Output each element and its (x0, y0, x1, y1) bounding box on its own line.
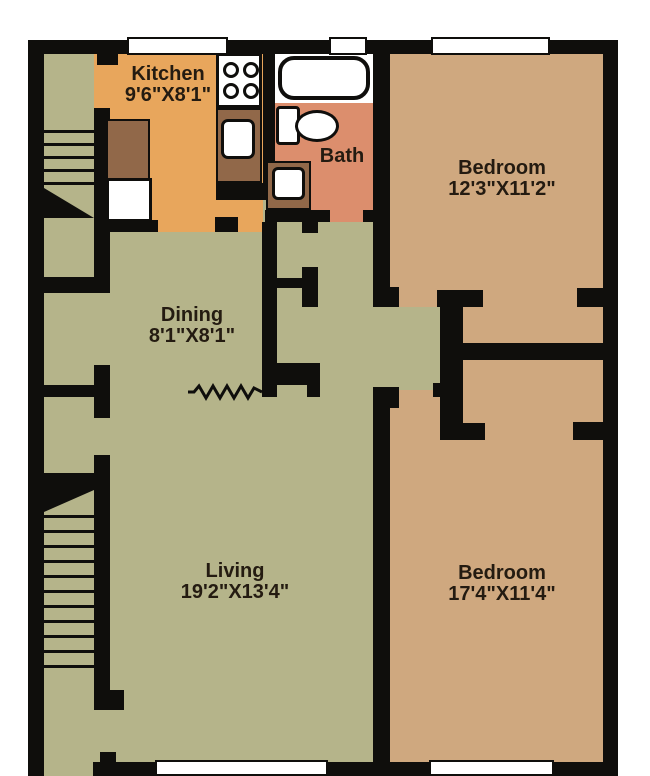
label-bedroom1: Bedroom 12'3"X11'2" (422, 158, 582, 200)
room-dims: 12'3"X11'2" (422, 179, 582, 200)
label-dining: Dining 8'1"X8'1" (112, 305, 272, 347)
kitchen-counter-left (106, 119, 150, 181)
room-name: Living (155, 561, 315, 582)
room-dims: 9'6"X8'1" (88, 85, 248, 106)
front-door-opening-floor (44, 763, 93, 776)
wall-bath-bottom (265, 210, 330, 222)
bedroom1-closet-floor (457, 307, 604, 343)
wall-bath-door-tooth (302, 222, 318, 233)
stair-tread (44, 156, 94, 159)
stair-tread (44, 575, 94, 578)
wall-closet2-stub-right (573, 422, 604, 440)
stair-tread (44, 130, 94, 133)
stair-tread (44, 560, 94, 563)
wall-hall-low-tooth (307, 385, 320, 397)
wall-bedroom1-foot (390, 287, 399, 307)
wall-closet-t-bar (440, 307, 463, 440)
stair-tread (44, 605, 94, 608)
stair-tread (44, 635, 94, 638)
wall-shaft-seg-d (94, 490, 110, 710)
refrigerator-icon (106, 178, 152, 222)
stair-tread (44, 530, 94, 533)
stair-tread (44, 590, 94, 593)
stair-tread (44, 620, 94, 623)
wall-shaft-foot (108, 690, 124, 710)
bath-sink-icon (272, 167, 305, 200)
wall-bedroom1-left (373, 53, 390, 307)
kitchen-sink-icon (221, 119, 255, 159)
label-bedroom2: Bedroom 17'4"X11'4" (422, 563, 582, 605)
room-name: Bath (302, 146, 382, 167)
room-name: Bedroom (422, 158, 582, 179)
floor-plan: Kitchen 9'6"X8'1" Bath Bedroom 12'3"X11'… (0, 0, 650, 776)
label-kitchen: Kitchen 9'6"X8'1" (88, 64, 248, 106)
wall-bedroom-separator (457, 343, 618, 360)
wall-hall-mid-tooth (302, 267, 318, 307)
wall-bedroom2-door-tooth (433, 383, 445, 397)
bathtub-icon (278, 56, 370, 100)
stair-tread (44, 169, 94, 172)
outer-wall-left (28, 40, 44, 776)
window-living (155, 760, 328, 776)
room-name: Bedroom (422, 563, 582, 584)
window-bedroom2 (429, 760, 554, 776)
wall-bedroom2-foot (390, 387, 399, 408)
room-dims: 8'1"X8'1" (112, 326, 272, 347)
wall-closet1-stub-right (577, 288, 604, 307)
window-bedroom1 (431, 37, 550, 55)
room-dims: 19'2"X13'4" (155, 582, 315, 603)
wall-kitchen-bottom-right (215, 217, 238, 232)
wall-shaft-seg-c (94, 455, 110, 475)
room-name: Kitchen (88, 64, 248, 85)
wall-hall-low-block (277, 363, 320, 385)
window-bath (329, 37, 367, 55)
wall-entry-tooth (100, 752, 116, 763)
room-dims: 17'4"X11'4" (422, 584, 582, 605)
wall-stair-landing-b (44, 385, 104, 397)
toilet-bowl-icon (295, 110, 339, 142)
outer-wall-right (603, 40, 618, 776)
stair-tread (44, 515, 94, 518)
stair-tread (44, 182, 94, 185)
room-name: Dining (112, 305, 272, 326)
window-kitchen (127, 37, 228, 55)
stair-tread (44, 665, 94, 668)
wall-stair-landing-a (44, 277, 110, 293)
wall-closet-t-foot (463, 423, 485, 440)
room-divider-zigzag (188, 383, 264, 401)
wall-stair-head (44, 473, 110, 490)
stair-tread (44, 545, 94, 548)
label-bath: Bath (302, 146, 382, 167)
wall-closet-t-flange (437, 290, 483, 307)
stair-tread (44, 143, 94, 146)
label-living: Living 19'2"X13'4" (155, 561, 315, 603)
wall-living-bedroom2 (373, 387, 390, 762)
stair-tread (44, 650, 94, 653)
